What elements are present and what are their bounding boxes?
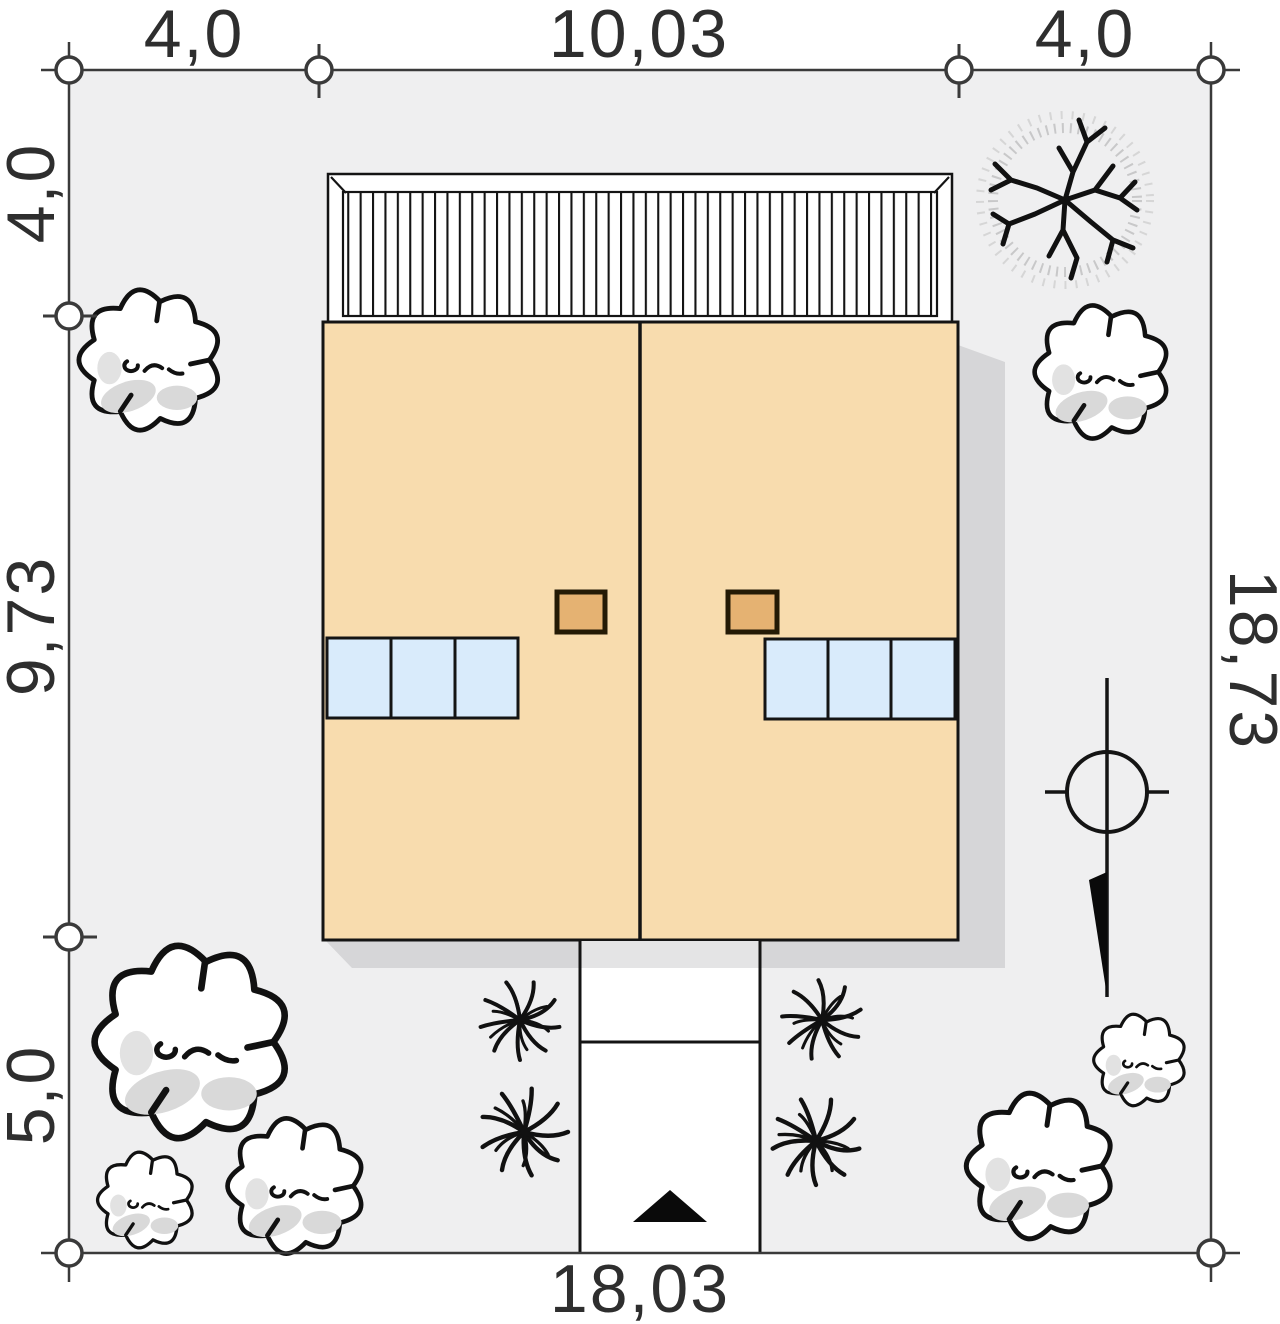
- dimension-marker: [56, 1240, 82, 1266]
- dim-label-left-middle: 9,73: [0, 556, 69, 696]
- chimney-left: [557, 592, 605, 632]
- dimension-marker: [946, 57, 972, 83]
- dim-label-top-middle: 10,03: [549, 0, 729, 72]
- dimension-marker: [1198, 1240, 1224, 1266]
- site-plan: 4,0 10,03 4,0 4,0 9,73 5,0 18,73 18,03: [0, 0, 1280, 1324]
- dim-label-left-bottom: 5,0: [0, 1045, 69, 1146]
- skylight-row-right: [765, 639, 955, 719]
- dimension-marker: [306, 57, 332, 83]
- house-roof: [323, 322, 958, 940]
- dim-label-right-side: 18,73: [1215, 570, 1280, 750]
- dimension-marker: [1198, 57, 1224, 83]
- terrace-deck: [328, 174, 952, 322]
- dim-label-top-right: 4,0: [1035, 0, 1136, 72]
- dimension-marker: [56, 57, 82, 83]
- dim-label-top-left: 4,0: [144, 0, 245, 72]
- dim-label-left-top: 4,0: [0, 143, 69, 244]
- dimension-marker: [56, 303, 82, 329]
- dim-label-bottom: 18,03: [550, 1251, 730, 1324]
- chimney-right: [728, 592, 777, 632]
- skylight-row-left: [327, 638, 518, 718]
- dimension-marker: [56, 924, 82, 950]
